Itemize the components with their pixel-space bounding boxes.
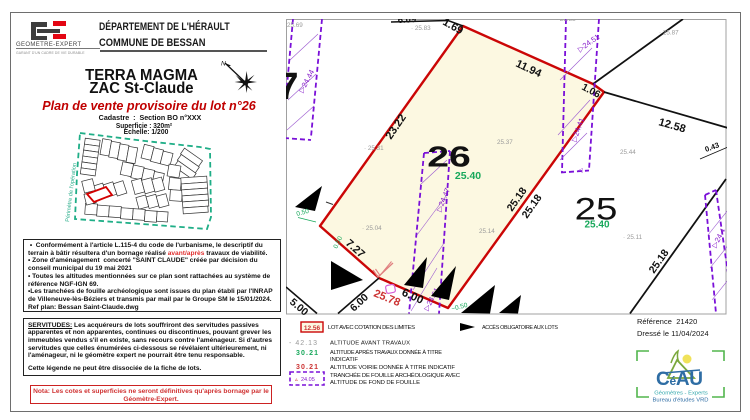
svg-text:ALTITUDE AVANT TRAVAUX: ALTITUDE AVANT TRAVAUX — [330, 341, 410, 347]
svg-text:ALTITUDE DE FOND DE FOUILLE: ALTITUDE DE FOND DE FOUILLE — [330, 380, 420, 386]
svg-text:INDICATIF: INDICATIF — [330, 357, 358, 363]
svg-text:◁: ◁ — [578, 168, 583, 174]
svg-text:N: N — [221, 61, 226, 68]
svg-text:30.21: 30.21 — [296, 350, 318, 357]
svg-text:▷24.51: ▷24.51 — [576, 32, 601, 53]
svg-text:Bureau d'études VRD: Bureau d'études VRD — [653, 398, 709, 404]
svg-text:CéAU: CéAU — [656, 369, 703, 390]
svg-text:TRANCHÉE DE FOUILLE ARCHÉOLOGI: TRANCHÉE DE FOUILLE ARCHÉOLOGIQUE AVEC — [330, 372, 461, 379]
svg-text:· 25.83: · 25.83 — [411, 25, 431, 32]
svg-text:▵: ▵ — [295, 377, 298, 383]
svg-text:7: 7 — [286, 66, 299, 108]
svg-text:6.00: 6.00 — [348, 291, 371, 314]
svg-text:Géomètres - Experts: Géomètres - Experts — [654, 391, 708, 397]
svg-text:26: 26 — [427, 141, 471, 173]
svg-text:▷24.44: ▷24.44 — [297, 68, 316, 94]
svg-text:ALTITUDE VOIRIE DONNÉE À TITRE: ALTITUDE VOIRIE DONNÉE À TITRE INDICATIF — [330, 364, 455, 371]
svg-text:ACCÈS OBLIGATOIRE AUX LOTS: ACCÈS OBLIGATOIRE AUX LOTS — [482, 324, 558, 331]
svg-text:25.14: 25.14 — [479, 228, 495, 235]
svg-text:30.21: 30.21 — [296, 364, 318, 371]
svg-text:25.78: 25.78 — [372, 288, 402, 309]
svg-text:· 25.88: · 25.88 — [556, 19, 576, 23]
svg-text:LOT AVEC COTATION DES LIMITES: LOT AVEC COTATION DES LIMITES — [328, 325, 415, 331]
svg-text:5.00: 5.00 — [287, 296, 310, 315]
svg-text:25.69: 25.69 — [287, 22, 303, 29]
svg-text:12.58: 12.58 — [657, 116, 687, 135]
svg-text:25.40: 25.40 — [455, 170, 481, 182]
svg-text:ALTITUDE APRÈS TRAVAUX DONNÉE: ALTITUDE APRÈS TRAVAUX DONNÉE À TITRE — [330, 349, 442, 356]
svg-text:· 25.31: · 25.31 — [364, 145, 384, 152]
svg-text:0.50: 0.50 — [296, 208, 310, 218]
svg-text:- 42.13: - 42.13 — [289, 340, 317, 347]
svg-text:· 25.87: · 25.87 — [659, 30, 679, 37]
svg-text:· 25.11: · 25.11 — [623, 234, 643, 241]
svg-text:24.05: 24.05 — [301, 377, 315, 383]
svg-text:12.56: 12.56 — [304, 325, 321, 332]
svg-text:25.44: 25.44 — [620, 149, 636, 156]
svg-text:25.37: 25.37 — [497, 139, 513, 146]
svg-text:· 25.04: · 25.04 — [362, 225, 382, 232]
svg-text:25.40: 25.40 — [584, 220, 609, 231]
svg-text:0.43: 0.43 — [704, 140, 721, 153]
